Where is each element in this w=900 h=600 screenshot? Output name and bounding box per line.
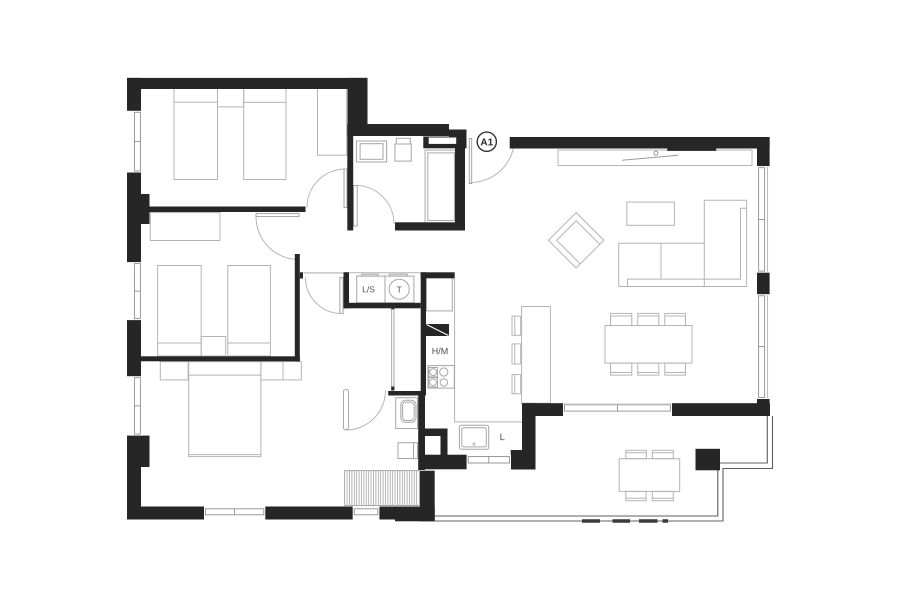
- svg-text:H/M: H/M: [432, 346, 449, 356]
- svg-text:T: T: [397, 284, 402, 294]
- svg-text:L: L: [500, 432, 505, 443]
- svg-text:L/S: L/S: [362, 284, 375, 294]
- svg-text:A1: A1: [480, 137, 493, 148]
